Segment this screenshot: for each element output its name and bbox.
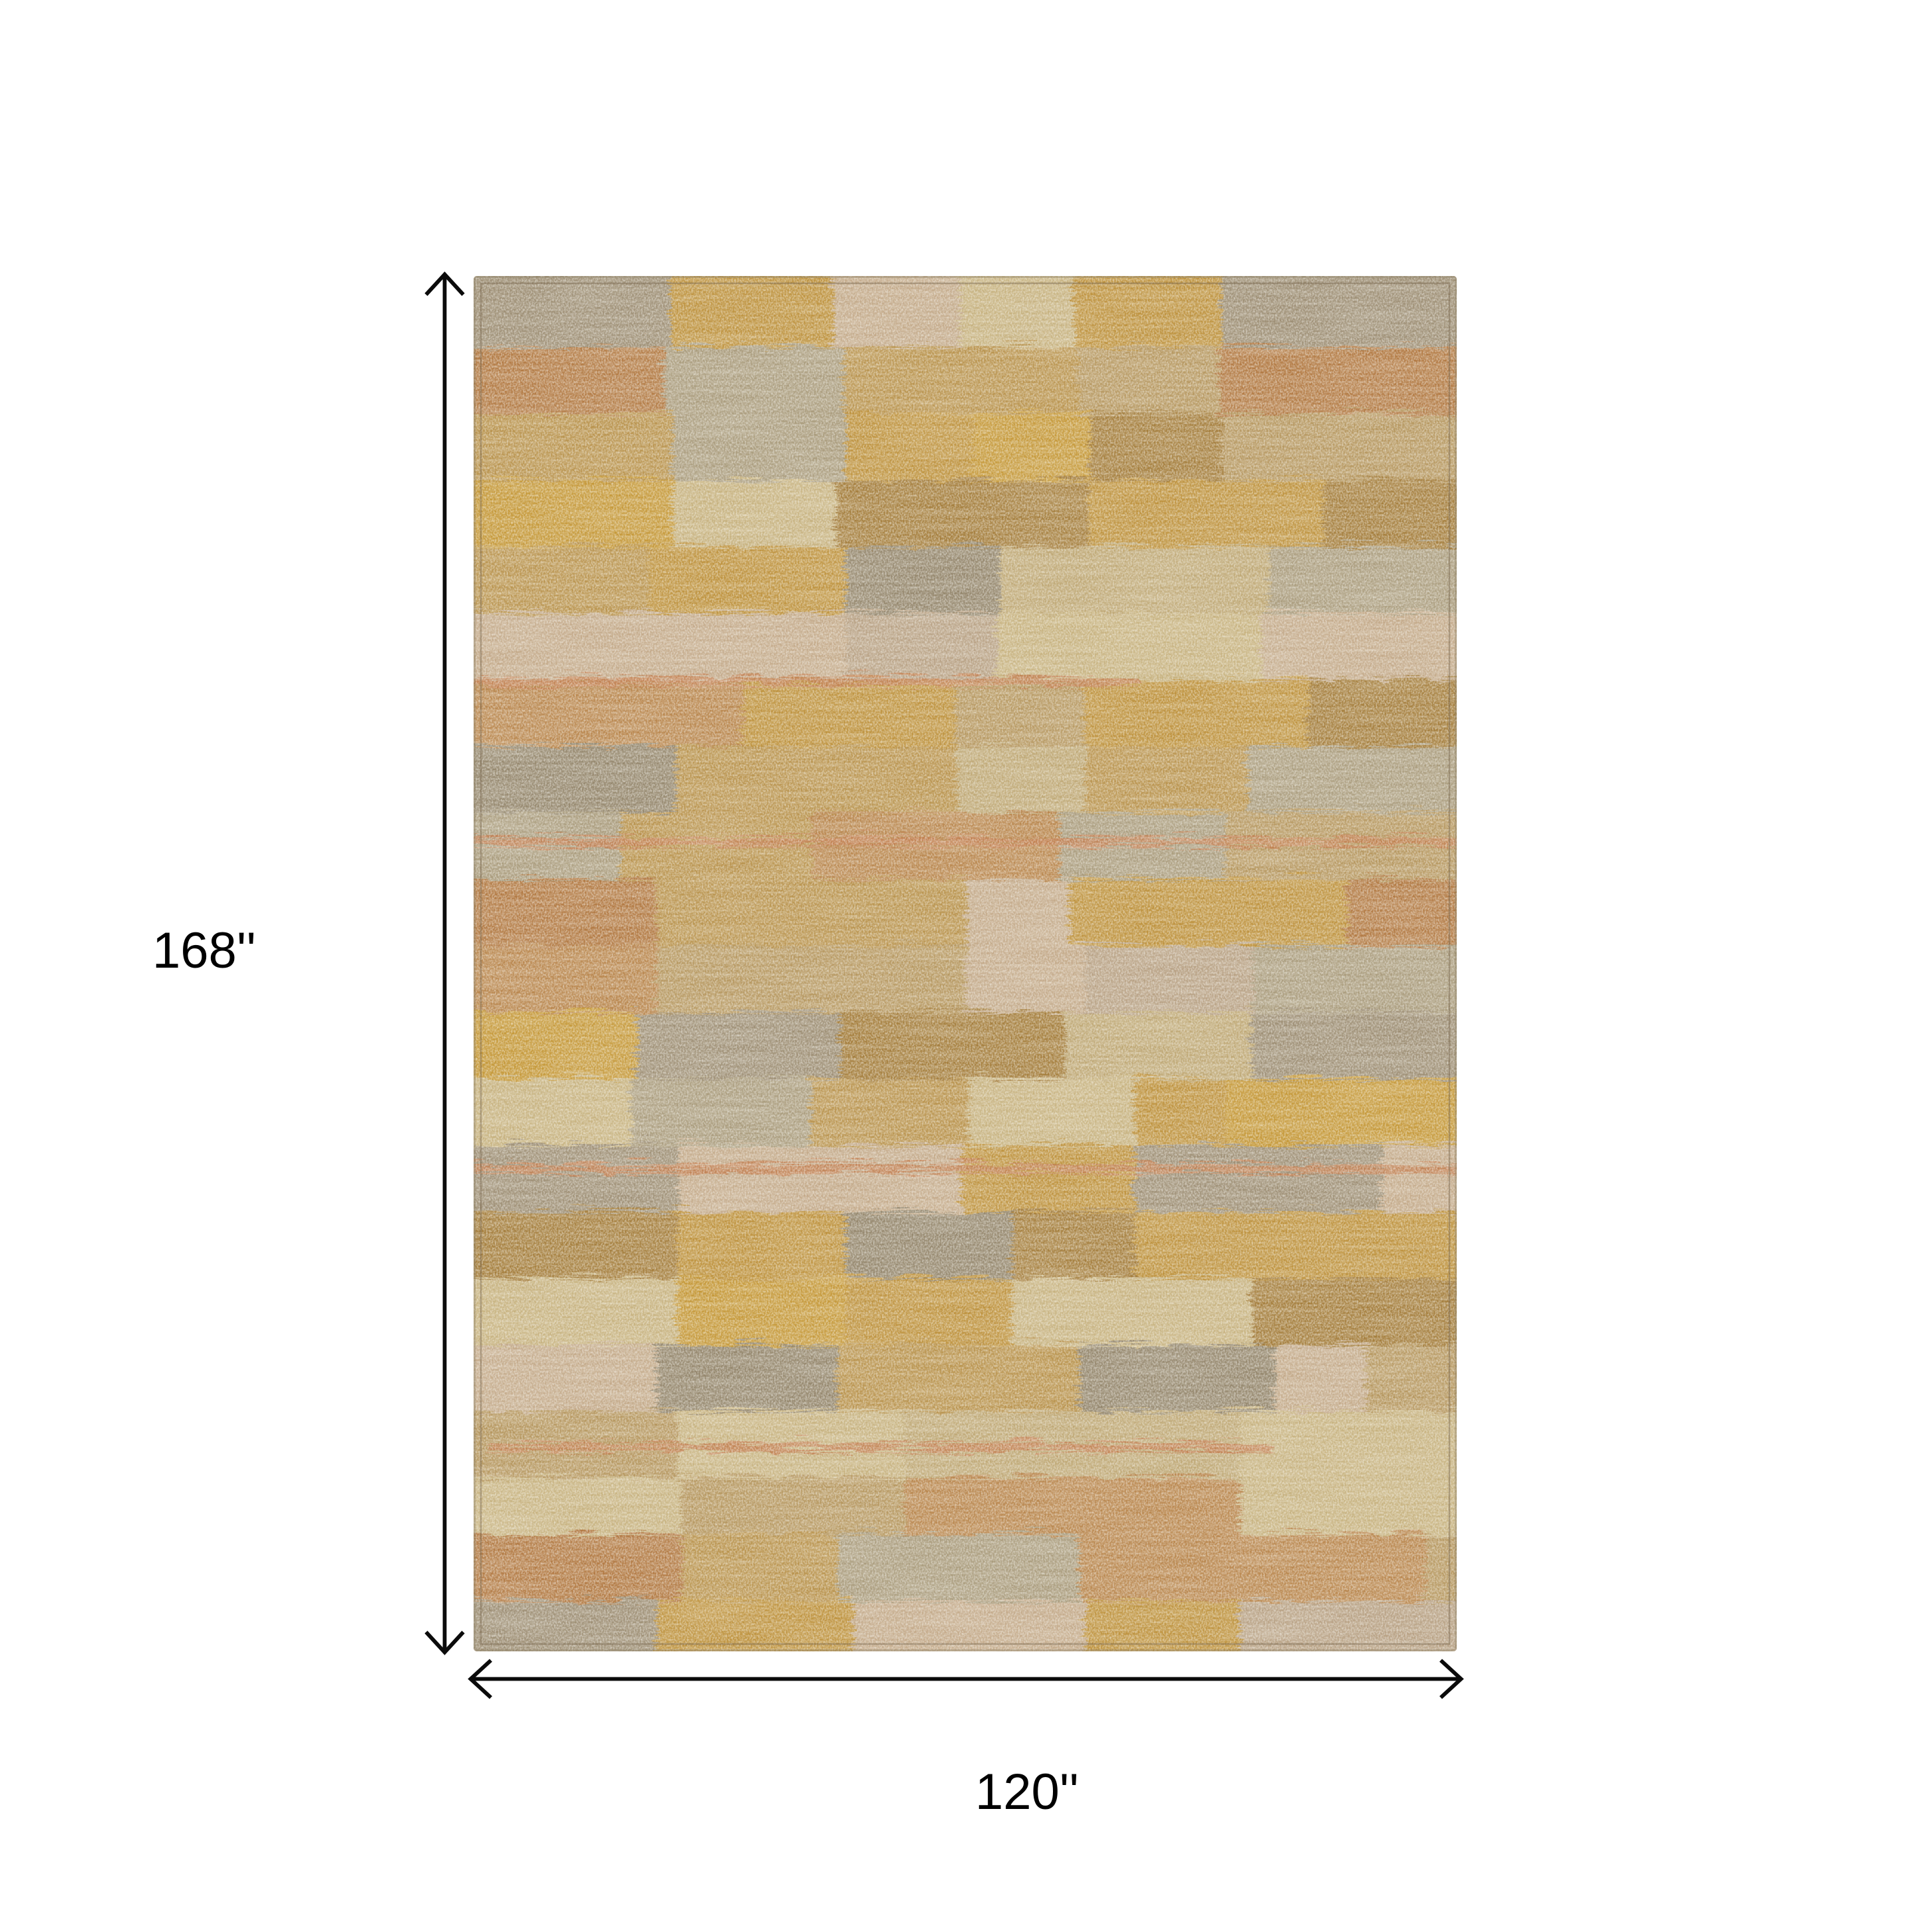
svg-text:168'': 168'' [152, 922, 256, 979]
svg-text:120'': 120'' [975, 1764, 1079, 1820]
